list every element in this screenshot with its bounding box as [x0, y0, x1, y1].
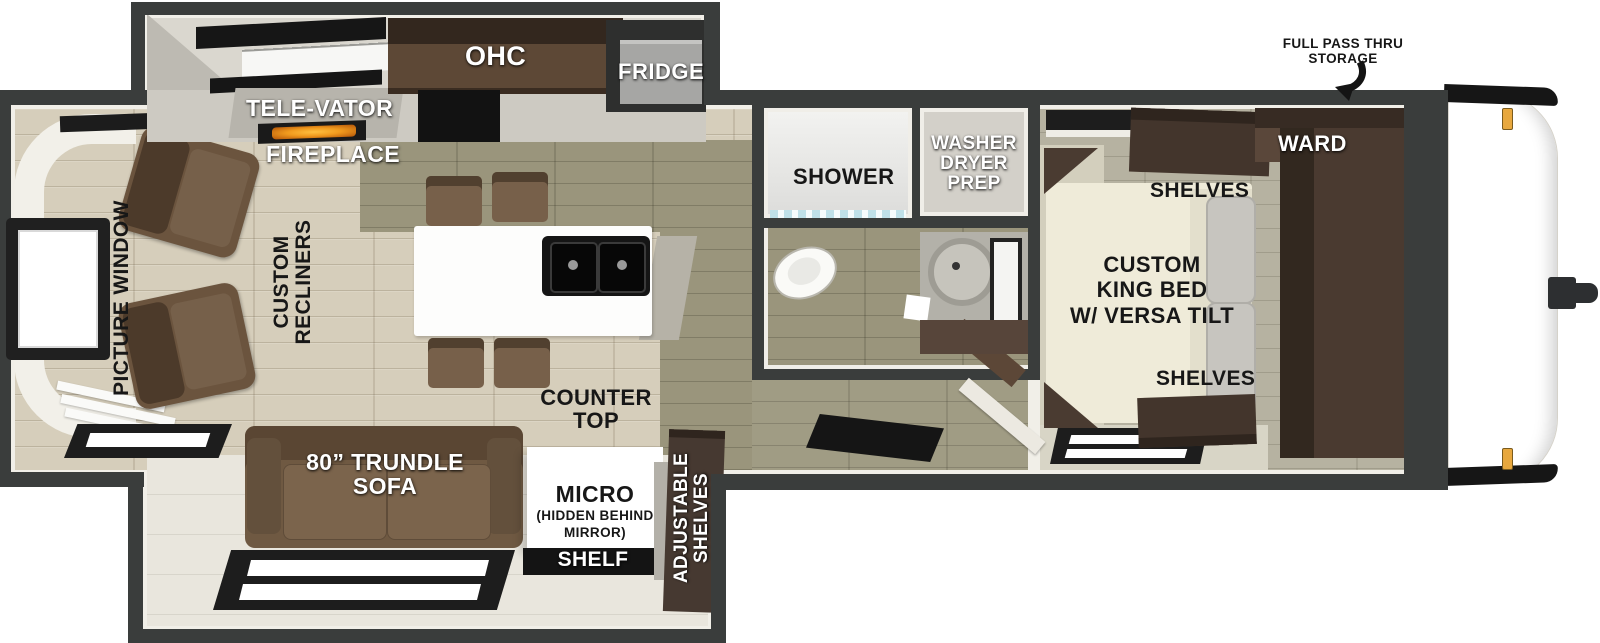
trundle-sofa-label-line1: 80” TRUNDLE	[275, 450, 495, 474]
micro-sub-label-line2: MIRROR)	[523, 525, 667, 542]
hitch-tongue	[1570, 283, 1598, 303]
island-chair-4	[494, 338, 550, 388]
stove-cooktop	[418, 90, 500, 142]
recliners-label-line1: CUSTOM	[271, 220, 293, 345]
floorplan-canvas: FULL PASS THRU STORAGE TELE-VATOR FIREPL…	[0, 0, 1600, 643]
trundle-sofa-label: 80” TRUNDLE SOFA	[275, 450, 495, 499]
wall-front	[1404, 90, 1448, 490]
trundle-sofa-label-line2: SOFA	[275, 474, 495, 498]
counter-top-label: COUNTER TOP	[520, 386, 672, 433]
counter-top-label-line2: TOP	[520, 409, 672, 432]
shelves-bottom-label: SHELVES	[1156, 368, 1255, 390]
picture-window-glass	[18, 230, 98, 348]
rear-window	[64, 424, 232, 458]
sink-faucet-right	[617, 260, 627, 270]
sofa-slide-window-pane-2	[239, 584, 481, 600]
counter-top-label-line1: COUNTER	[520, 386, 672, 409]
rear-window-pane	[86, 433, 211, 447]
shower-label: SHOWER	[793, 165, 894, 188]
recliners-label: CUSTOM RECLINERS	[271, 220, 316, 345]
island-chair-1	[426, 176, 482, 226]
storage-arrow-icon	[1320, 60, 1368, 102]
washer-dryer-label: WASHER DRYER PREP	[916, 134, 1032, 194]
wall-bottom-slide-bottom	[128, 629, 726, 643]
adjustable-shelves-label-line1: ADJUSTABLE	[672, 453, 692, 583]
picture-window-label: PICTURE WINDOW	[111, 200, 133, 396]
front-cap-body	[1444, 92, 1558, 484]
wall-slide-left	[131, 2, 145, 92]
wardrobe-column	[1280, 128, 1406, 458]
wall-rear-bottom	[0, 472, 144, 487]
tele-vator-label: TELE-VATOR	[246, 96, 393, 120]
vanity-mirror	[990, 238, 1022, 324]
king-bed-label-line3: W/ VERSA TILT	[1052, 303, 1252, 328]
fireplace-label: FIREPLACE	[266, 142, 400, 166]
wall-bottom-slide-right	[711, 476, 726, 643]
island-chair-3	[428, 338, 484, 388]
bedroom-shelves-bottom-unit	[1137, 394, 1257, 448]
marker-light-bottom	[1502, 448, 1513, 470]
wall-bottom-slide-left	[128, 472, 143, 643]
island-chair-2	[492, 172, 548, 222]
wall-slide-right	[704, 2, 720, 92]
adjustable-shelves-label-line2: SHELVES	[692, 453, 712, 583]
micro-sub-label-line1: (HIDDEN BEHIND	[523, 508, 667, 525]
sink-faucet-left	[568, 260, 578, 270]
wall-rear-top	[0, 90, 147, 105]
ohc-label: OHC	[465, 42, 526, 71]
shelves-top-label: SHELVES	[1150, 180, 1249, 202]
sofa-slide-window	[213, 550, 515, 610]
recliners-label-line2: RECLINERS	[293, 220, 315, 345]
ward-label: WARD	[1278, 132, 1347, 155]
lav-sink	[928, 238, 996, 306]
washer-dryer-label-line3: PREP	[916, 174, 1032, 194]
micro-label: MICRO	[529, 482, 661, 506]
vanity-cabinet	[920, 320, 1028, 354]
king-bed-label: CUSTOM KING BED W/ VERSA TILT	[1052, 252, 1252, 328]
bedroom-top-window-sill	[1046, 130, 1140, 137]
lav-sink-drain	[952, 262, 960, 270]
bedroom-top-window	[1046, 110, 1140, 130]
storage-label-line1: FULL PASS THRU	[1272, 36, 1414, 51]
king-bed-label-line1: CUSTOM	[1052, 252, 1252, 277]
shelf-label: SHELF	[523, 549, 663, 571]
bedroom-shelves-top-unit	[1129, 108, 1271, 177]
shower-glass-door	[770, 210, 906, 218]
shower-room	[764, 108, 912, 218]
washer-dryer-label-line1: WASHER	[916, 134, 1032, 154]
wall-slide-top	[131, 2, 711, 15]
washer-dryer-label-line2: DRYER	[916, 154, 1032, 174]
micro-sub-label: (HIDDEN BEHIND MIRROR)	[523, 508, 667, 542]
bedroom-bottom-window-pane-2	[1065, 449, 1188, 458]
soap-dish	[903, 294, 930, 321]
toilet-seat	[783, 252, 825, 290]
sofa-slide-window-pane-1	[247, 560, 489, 576]
adjustable-shelves-label: ADJUSTABLE SHELVES	[672, 453, 712, 583]
front-cap-trim-bottom	[1444, 464, 1559, 486]
marker-light-top	[1502, 108, 1513, 130]
wall-main-bottom	[711, 474, 1438, 490]
fridge-label: FRIDGE	[618, 60, 704, 83]
king-bed-label-line2: KING BED	[1052, 277, 1252, 302]
